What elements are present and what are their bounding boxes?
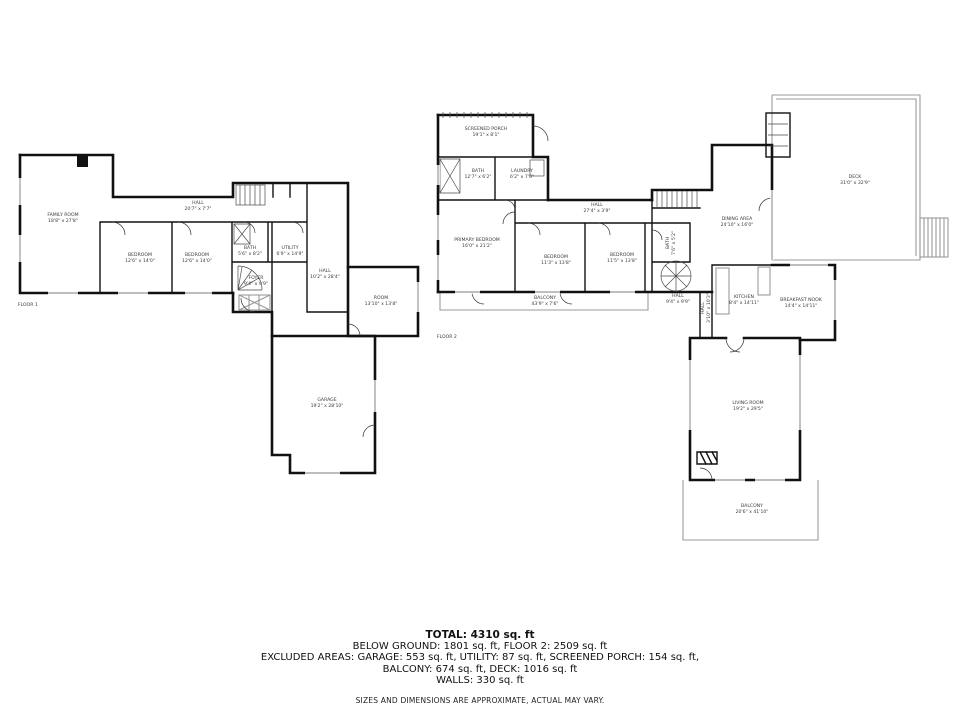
floor1-bedroom-right-label: BEDROOM [185, 252, 209, 258]
floor2-plan: SCREENED PORCH 19'1" x 8'1" BATH 12'7" x… [437, 95, 948, 540]
garage-dims: 19'2" x 28'10" [311, 403, 344, 409]
floor1-bedroom-right-dims: 12'6" x 14'0" [182, 258, 212, 264]
living-room-dims: 19'2" x 29'5" [733, 406, 763, 412]
floor2-stairs-straight [657, 191, 697, 207]
floor1-hall-lower-dims: 10'2" x 28'4" [310, 274, 340, 280]
summary-line2: BELOW GROUND: 1801 sq. ft, FLOOR 2: 2509… [0, 641, 960, 652]
floor2-bath-small-label: BATH [665, 237, 671, 249]
summary-line5: WALLS: 330 sq. ft [0, 675, 960, 686]
breakfast-nook-label: BREAKFAST NOOK [780, 297, 823, 303]
floor2-hall-top-dims: 27'4" x 3'9" [583, 208, 610, 214]
utility-label: UTILITY [281, 245, 298, 251]
floor2-dining-alcove [652, 145, 772, 200]
balcony-rear-dims: 43'9" x 7'6" [531, 301, 558, 307]
floorplan-drawing: FAMILY ROOM 18'8" x 27'8" HALL 20'7" x 7… [0, 0, 960, 720]
floor2-bedroom-right-label: BEDROOM [610, 252, 634, 258]
summary-line3: EXCLUDED AREAS: GARAGE: 553 sq. ft, UTIL… [0, 652, 960, 663]
summary-line4: BALCONY: 674 sq. ft, DECK: 1016 sq. ft [0, 664, 960, 675]
living-room-label: LIVING ROOM [732, 400, 763, 406]
floor1-plan: FAMILY ROOM 18'8" x 27'8" HALL 20'7" x 7… [18, 155, 418, 473]
floor1-hall-lower-label: HALL [319, 268, 331, 274]
pantry-shelves [768, 124, 788, 146]
laundry-dims: 6'2" x 7'0" [510, 174, 534, 180]
floor2-hall-top-label: HALL [591, 202, 603, 208]
dining-area-dims: 24'10" x 16'0" [721, 222, 754, 228]
floor1-exterior-left-bottom [20, 155, 233, 293]
family-room-label: FAMILY ROOM [47, 212, 78, 218]
room-dims: 13'10" x 13'8" [365, 301, 398, 307]
summary-total: TOTAL: 4310 sq. ft [0, 629, 960, 641]
floor2-hall-stairs-label: HALL [672, 293, 684, 299]
floor2-hall-vertical-label-group: HALL 3'10" x 10'3" [700, 293, 712, 323]
floor2-bedroom-left-label: BEDROOM [544, 254, 568, 260]
fireplace [697, 452, 717, 464]
foyer-label: FOYER [249, 275, 265, 281]
breakfast-nook-dims: 14'4" x 14'11" [785, 303, 818, 309]
floor2-hall-stairs-dims: 9'4" x 9'9" [666, 299, 690, 305]
floor2-bath-upper-dims: 12'7" x 6'2" [464, 174, 491, 180]
screened-porch-label: SCREENED PORCH [465, 126, 507, 132]
deck-label: DECK [849, 174, 863, 180]
floor1-bedroom-left-label: BEDROOM [128, 252, 152, 258]
floor1-bath-label: BATH [244, 245, 256, 251]
room-label: ROOM [374, 295, 388, 301]
floor1-bath-dims: 5'6" x 8'2" [238, 251, 262, 257]
kitchen-dims: 8'4" x 14'11" [729, 300, 759, 306]
screened-porch-dims: 19'1" x 8'1" [472, 132, 499, 138]
dining-area-label: DINING AREA [722, 216, 753, 222]
floor2-bedroom-left-dims: 11'3" x 13'8" [541, 260, 571, 266]
balcony-front-dims: 20'6" x 41'10" [736, 509, 769, 515]
floor2-bath-shower [440, 159, 460, 193]
floor1-hall-upper-dims: 20'7" x 7'7" [184, 206, 211, 212]
deck-stairs [924, 218, 944, 257]
laundry-label: LAUNDRY [511, 168, 533, 174]
balcony-front-label: BALCONY [741, 503, 763, 509]
deck-dims: 31'0" x 32'9" [840, 180, 870, 186]
balcony-rear-label: BALCONY [534, 295, 556, 301]
foyer-dims: 9'4" x 9'9" [244, 281, 268, 287]
primary-bedroom-dims: 16'0" x 21'2" [462, 243, 492, 249]
kitchen-label: KITCHEN [734, 294, 754, 300]
family-room-dims: 18'8" x 27'8" [48, 218, 78, 224]
floor1-hall-upper-label: HALL [192, 200, 204, 206]
floor2-windows [438, 165, 835, 480]
summary-disclaimer: SIZES AND DIMENSIONS ARE APPROXIMATE, AC… [0, 696, 960, 705]
kitchen-counters [716, 267, 770, 314]
floor1-stairs-upper [236, 185, 265, 205]
spiral-stair [661, 261, 691, 291]
floorplan-page: FAMILY ROOM 18'8" x 27'8" HALL 20'7" x 7… [0, 0, 960, 720]
floor2-bedroom-right-dims: 11'5" x 13'8" [607, 258, 637, 264]
garage-label: GARAGE [317, 397, 336, 403]
chimney-block [77, 156, 88, 167]
primary-bedroom-label: PRIMARY BEDROOM [454, 237, 500, 243]
floor1-bedroom-left-dims: 12'6" x 14'0" [125, 258, 155, 264]
floor2-bath-small-label-group: BATH 7'6" x 5'2" [665, 231, 677, 255]
floor1-entry-porch [239, 295, 270, 310]
floor2-bath-upper-label: BATH [472, 168, 484, 174]
floor2-label: FLOOR 2 [437, 334, 457, 340]
floor2-hall-vertical-label: HALL [700, 302, 706, 314]
floor2-hall-vertical-dims: 3'10" x 10'3" [706, 293, 712, 323]
summary-block: TOTAL: 4310 sq. ft BELOW GROUND: 1801 sq… [0, 629, 960, 705]
floor2-bath-small-dims: 7'6" x 5'2" [671, 231, 677, 255]
utility-dims: 6'9" x 14'9" [276, 251, 303, 257]
floor1-bath-shower [234, 224, 250, 244]
floor1-label: FLOOR 1 [18, 302, 38, 308]
